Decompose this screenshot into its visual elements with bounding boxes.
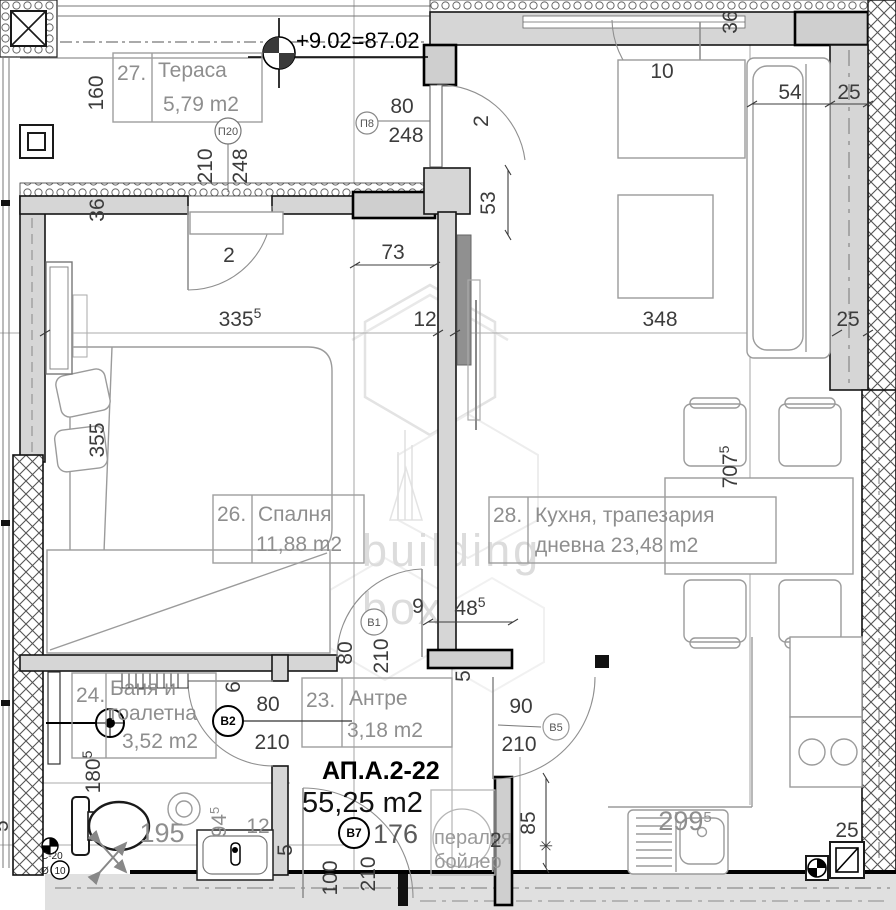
dim-seg-73: 73 <box>381 241 404 264</box>
dim-wall-25-top: 25 <box>837 81 860 104</box>
door-height: 248 <box>229 148 252 183</box>
room-num: 28. <box>493 504 522 527</box>
room-area: 5,79 m2 <box>163 93 239 116</box>
dim-door-entrance: 2 <box>470 115 493 127</box>
dim-basin-12: 12 <box>246 815 269 838</box>
door-width: 80 <box>256 693 279 716</box>
dim-seg-9: 9 <box>412 595 424 618</box>
door-height: 210 <box>357 856 380 891</box>
dim-seg-6: 6 <box>222 681 245 693</box>
bedroom-shelf <box>190 212 283 234</box>
dim-kitchen-width: 348 <box>642 308 677 331</box>
boiler-label: бойлер <box>434 851 502 873</box>
door-width: 210 <box>194 148 217 183</box>
door-width: 100 <box>319 860 342 895</box>
washer-2: 2 <box>490 829 502 852</box>
terrace-drain <box>20 125 53 158</box>
dim-five-a: 5 <box>274 844 297 856</box>
corridor-band <box>45 874 896 910</box>
dim-terrace-height: 160 <box>85 75 108 110</box>
dim-wall-25-right: 25 <box>836 308 859 331</box>
bath-duct <box>48 672 60 764</box>
dim-hall-176: 176 <box>373 819 418 849</box>
asterisk-mark: ✳ <box>539 837 553 856</box>
room-num: 27. <box>117 62 146 85</box>
tag-text: В2 <box>220 714 236 728</box>
room-name: Антре <box>349 687 408 710</box>
room-num: 26. <box>217 503 246 526</box>
elevation-text: +9.02=87.02 <box>296 28 420 53</box>
door-width: 80 <box>334 641 357 664</box>
tag-text: П8 <box>360 118 374 130</box>
dim-bath-195: 195 <box>139 818 184 848</box>
dim-wall-left: 36 <box>86 198 109 221</box>
dim-five-c: 5 <box>0 820 13 832</box>
entry-closet <box>618 60 745 158</box>
tag-text: В7 <box>346 826 362 840</box>
door-height: 210 <box>370 638 393 673</box>
room-area: 3,52 m2 <box>122 730 198 753</box>
dim-niche-85: 85 <box>517 811 540 834</box>
tag-text: В1 <box>367 617 380 629</box>
kitchen-cabinet <box>618 195 713 298</box>
room-name: Кухня, трапезария <box>535 504 715 527</box>
dim-bedroom-length: 355 <box>86 422 109 457</box>
pipe-diameter: Ø <box>41 866 49 877</box>
door-width: 80 <box>390 95 413 118</box>
door-height: 248 <box>388 124 423 147</box>
room-area: дневна 23,48 m2 <box>535 534 698 557</box>
room-name: Тераса <box>158 59 227 82</box>
dim-wall-12: 12 <box>413 308 436 331</box>
dim-wall-top-right: 36 <box>719 10 742 33</box>
room-area: 11,88 m2 <box>256 533 342 556</box>
door-height: 210 <box>254 731 289 754</box>
toilet <box>72 797 149 855</box>
tag-text: П20 <box>218 126 238 138</box>
dim-door-kitchen: 10 <box>650 60 673 83</box>
dim-sofa: 54 <box>778 81 802 104</box>
apartment-area: 55,25 m2 <box>302 787 423 819</box>
apartment-id: АП.А.2-22 <box>322 757 440 785</box>
dim-door-terrace: 2 <box>223 244 235 267</box>
room-name-2: тоалетна <box>108 702 197 725</box>
pipe-num: 10 <box>54 866 66 877</box>
dim-five-b: 5 <box>452 670 475 682</box>
dim-seg-53: 53 <box>477 191 500 214</box>
door-width: 90 <box>509 695 532 718</box>
room-num: 24. <box>76 684 105 707</box>
floor-plan: building box <box>0 0 896 910</box>
dim-wall-25-bottom: 25 <box>835 819 858 842</box>
room-name: Спалня <box>258 503 331 526</box>
wardrobe <box>47 550 330 653</box>
room-area: 3,18 m2 <box>347 719 423 742</box>
door-height: 210 <box>501 733 536 756</box>
room-num: 23. <box>306 689 335 712</box>
room-name: Баня и <box>110 677 176 700</box>
tag-text: В5 <box>549 722 562 734</box>
